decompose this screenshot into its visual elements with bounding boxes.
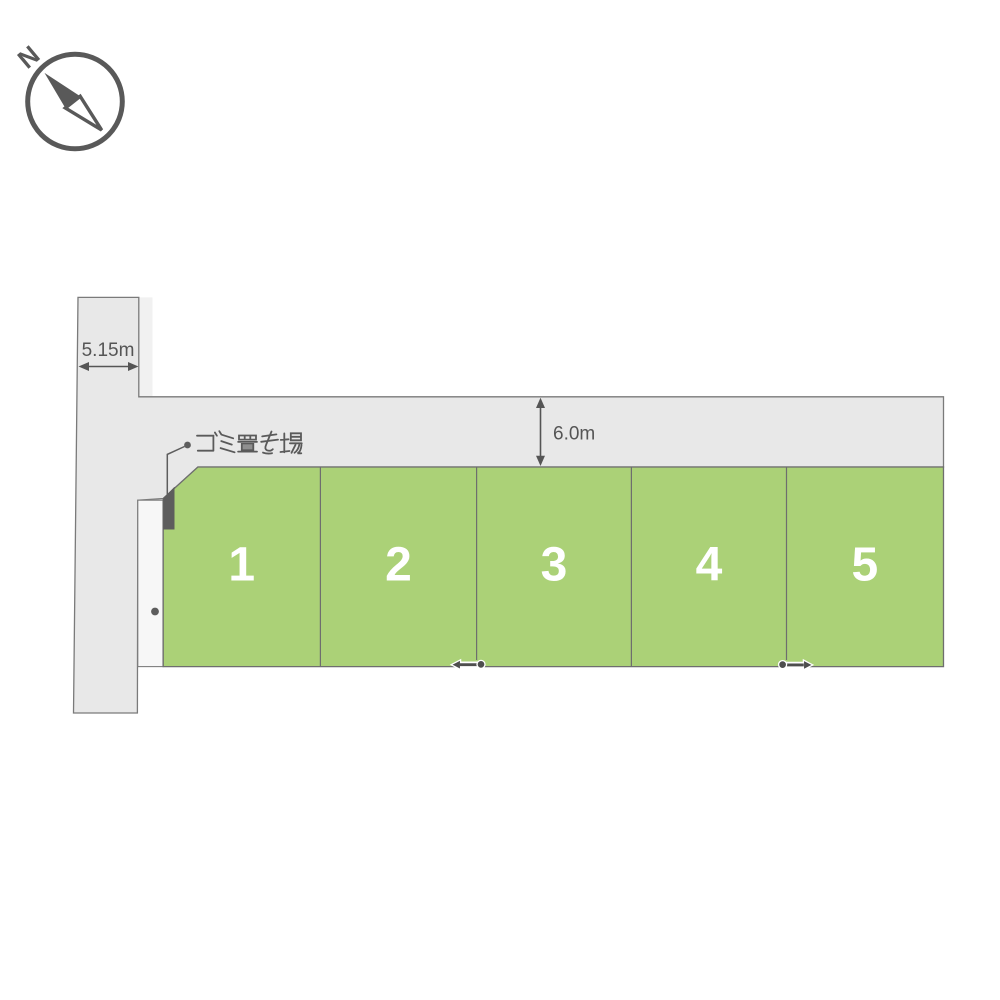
svg-text:1: 1 — [228, 539, 255, 592]
svg-text:6.0m: 6.0m — [553, 424, 595, 445]
svg-text:5.15m: 5.15m — [82, 340, 135, 361]
svg-text:2: 2 — [385, 539, 412, 592]
svg-text:4: 4 — [696, 539, 723, 592]
svg-text:5: 5 — [851, 539, 878, 592]
svg-text:3: 3 — [541, 539, 568, 592]
